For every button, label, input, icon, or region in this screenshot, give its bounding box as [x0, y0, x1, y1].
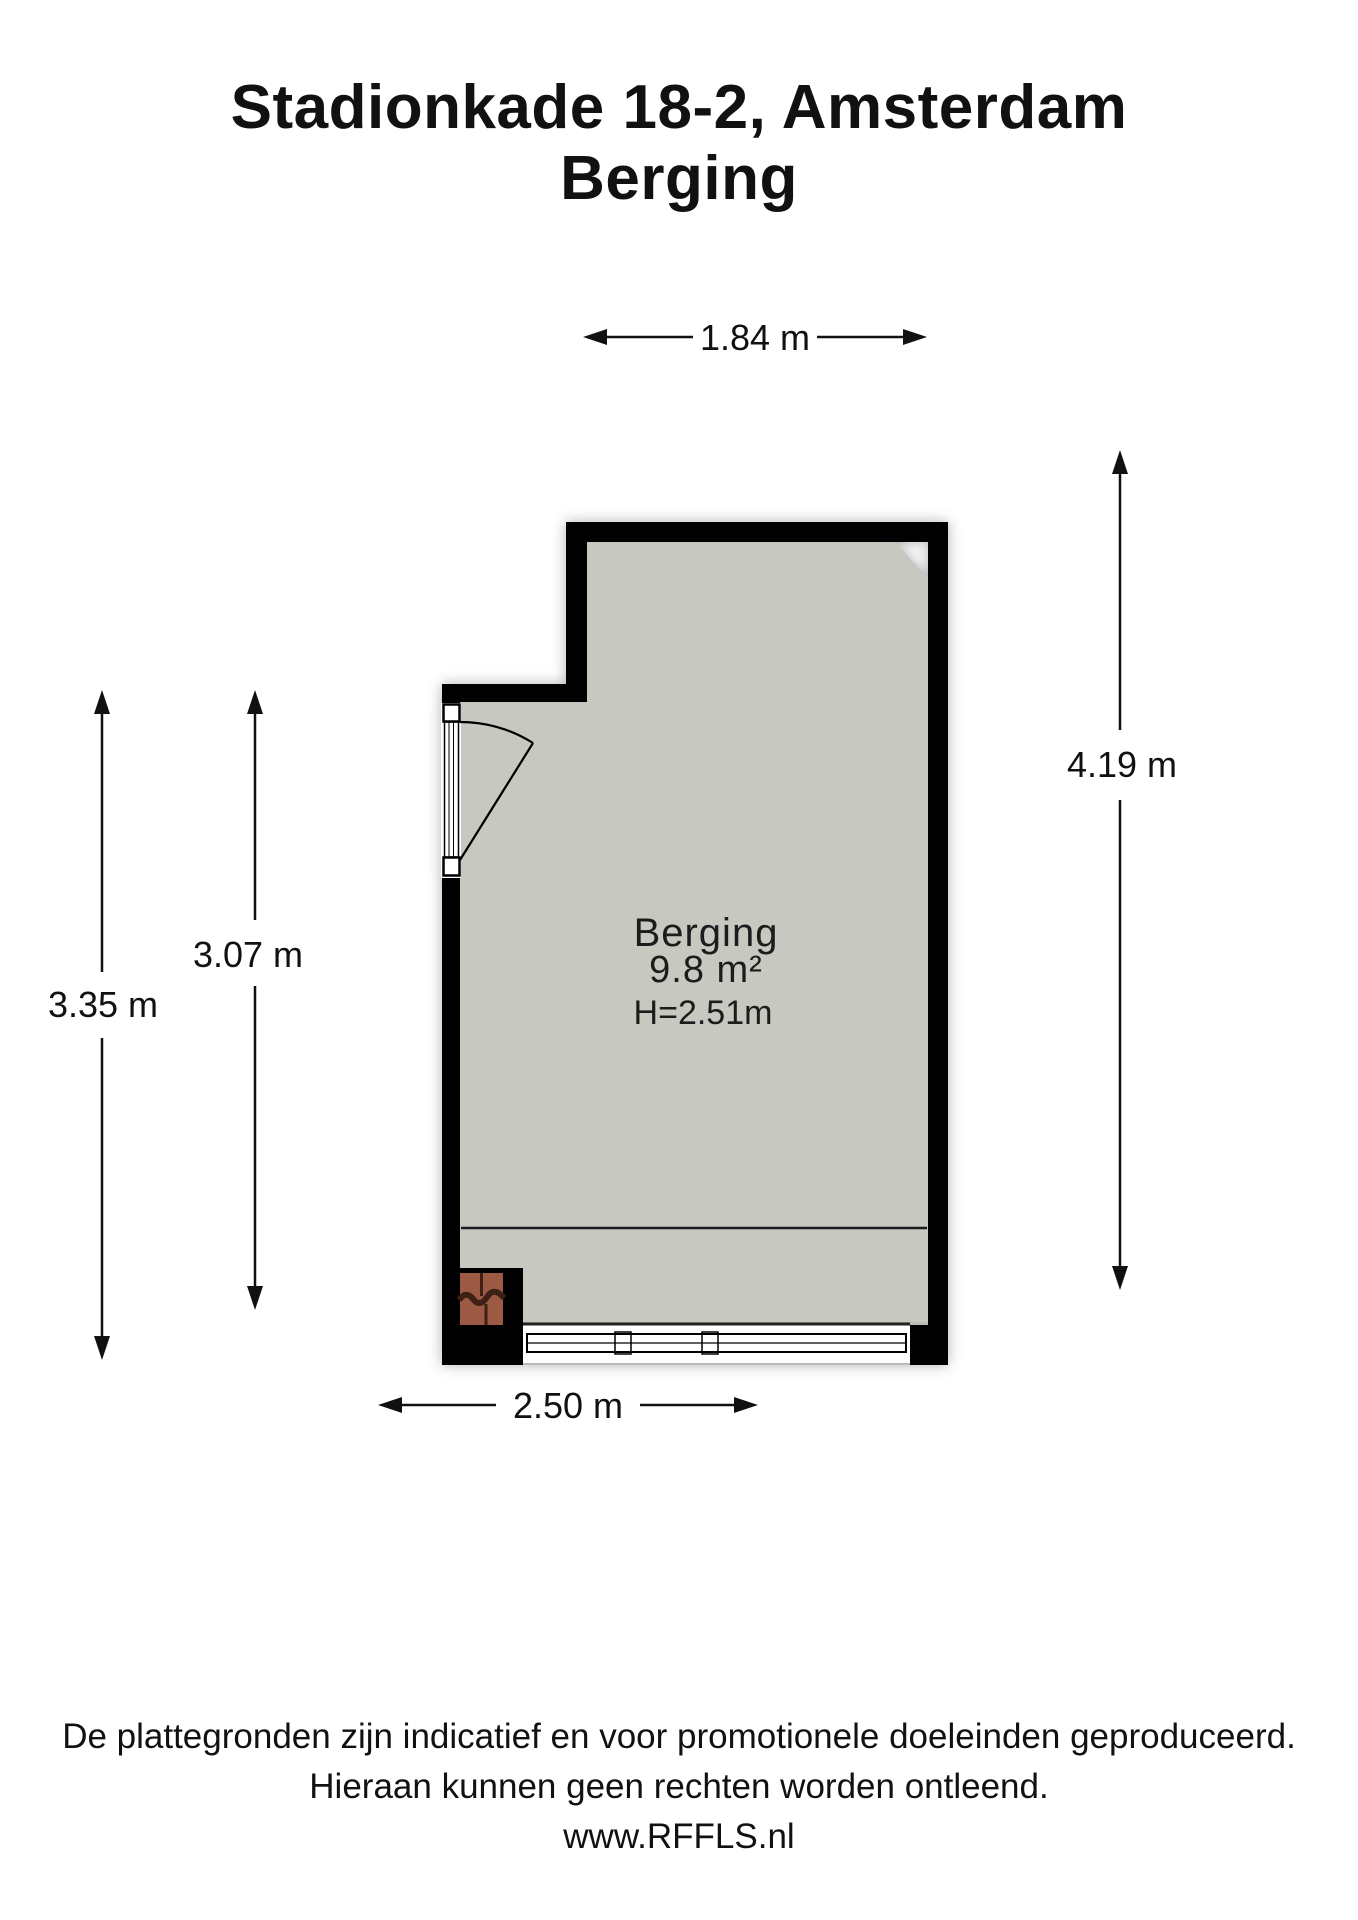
- arrow-down-icon: [1112, 1266, 1128, 1290]
- dimension-top-label: 1.84 m: [700, 317, 810, 358]
- room-label: Berging 9.8 m² H=2.51m: [634, 911, 779, 1032]
- wall-top: [566, 522, 948, 542]
- wall-upper-left: [566, 522, 587, 702]
- wall-bottom-right-block: [910, 1325, 948, 1365]
- room-ceiling-height: H=2.51m: [634, 994, 773, 1032]
- disclaimer: De plattegronden zijn indicatief en voor…: [0, 1712, 1358, 1862]
- window: [523, 1324, 910, 1365]
- wall-step: [442, 684, 587, 702]
- arrow-up-icon: [1112, 450, 1128, 474]
- disclaimer-line-2: Hieraan kunnen geen rechten worden ontle…: [0, 1762, 1358, 1812]
- window-band: [523, 1325, 910, 1365]
- dimension-left-inner: 3.07 m: [193, 690, 303, 1310]
- dimension-left-outer: 3.35 m: [48, 690, 158, 1360]
- dimension-top: 1.84 m: [583, 317, 927, 358]
- arrow-down-icon: [247, 1286, 263, 1310]
- dimension-right: 4.19 m: [1067, 450, 1177, 1290]
- chimney-brick: [459, 1273, 504, 1325]
- dimension-bottom-label: 2.50 m: [513, 1385, 623, 1426]
- dimension-left-outer-label: 3.35 m: [48, 984, 158, 1025]
- wall-right: [928, 522, 948, 1365]
- arrow-right-icon: [734, 1397, 758, 1413]
- dimension-right-label: 4.19 m: [1067, 744, 1177, 785]
- floorplan-svg: Berging 9.8 m² H=2.51m 1.84 m 3.35 m 3: [0, 0, 1358, 1920]
- room-area: 9.8 m²: [649, 949, 763, 991]
- arrow-left-icon: [583, 329, 607, 345]
- dimension-left-inner-label: 3.07 m: [193, 934, 303, 975]
- footer-website: www.RFFLS.nl: [0, 1812, 1358, 1862]
- arrow-up-icon: [94, 690, 110, 714]
- arrow-up-icon: [247, 690, 263, 714]
- floorplan-page: Stadionkade 18-2, Amsterdam Berging: [0, 0, 1358, 1920]
- dimension-bottom: 2.50 m: [378, 1385, 758, 1426]
- arrow-down-icon: [94, 1336, 110, 1360]
- arrow-right-icon: [903, 329, 927, 345]
- arrow-left-icon: [378, 1397, 402, 1413]
- disclaimer-line-1: De plattegronden zijn indicatief en voor…: [0, 1712, 1358, 1762]
